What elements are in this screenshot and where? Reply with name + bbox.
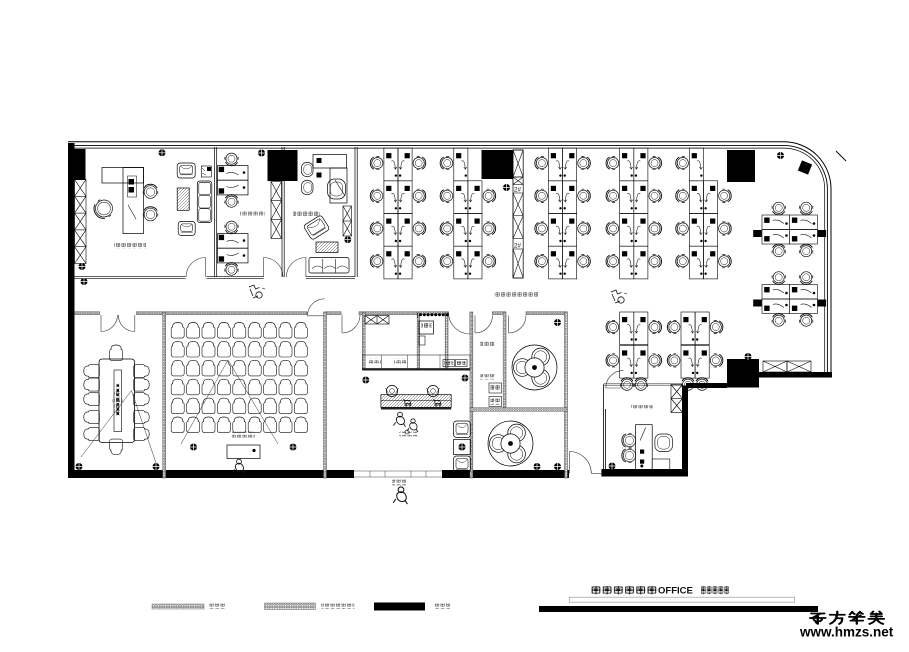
svg-text:www.hmzs.net: www.hmzs.net <box>799 625 894 640</box>
svg-text:2#: 2# <box>514 243 521 250</box>
svg-text:2#: 2# <box>514 187 521 194</box>
svg-text:OFFICE: OFFICE <box>658 586 693 597</box>
